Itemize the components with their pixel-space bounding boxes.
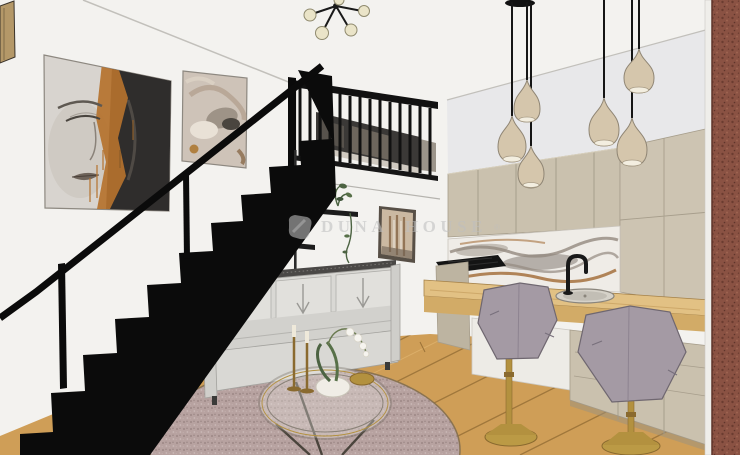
- scene-canvas: [0, 0, 740, 455]
- face-art-painting: [44, 55, 171, 211]
- brick-wall-column: [705, 0, 740, 455]
- small-art-print: [378, 206, 416, 263]
- interior-render-scene: DUNA HOUSE®: [0, 0, 740, 455]
- loft-wood-edge: [0, 1, 15, 63]
- sink: [556, 289, 614, 303]
- sofa-arm-right: [391, 264, 400, 362]
- gold-bowl: [350, 373, 374, 385]
